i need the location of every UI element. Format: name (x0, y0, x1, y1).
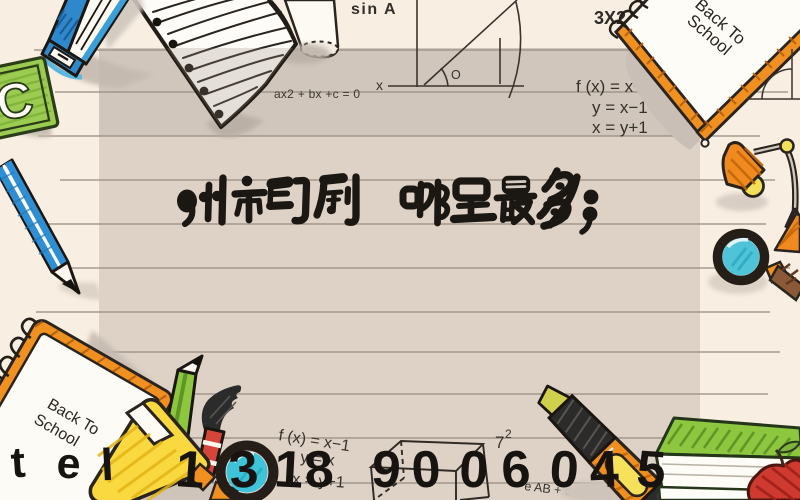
svg-text:1: 1 (174, 440, 207, 500)
svg-text:4: 4 (588, 440, 620, 499)
svg-text:sin A: sin A (351, 1, 397, 18)
svg-text:ax2 + bx +c = 0: ax2 + bx +c = 0 (274, 87, 360, 101)
svg-text:O: O (451, 68, 461, 82)
svg-text:0: 0 (458, 440, 490, 499)
svg-text:6: 6 (499, 440, 532, 500)
svg-text:x = y+1: x = y+1 (592, 118, 648, 137)
svg-text:1: 1 (273, 440, 305, 499)
svg-text:9: 9 (370, 440, 403, 500)
svg-text:0: 0 (548, 440, 581, 500)
svg-text:l: l (100, 439, 115, 491)
svg-text:0: 0 (410, 440, 442, 499)
svg-text:3: 3 (227, 440, 261, 500)
svg-text:y = x−1: y = x−1 (592, 98, 648, 117)
svg-text:2: 2 (505, 427, 512, 441)
svg-text:x: x (376, 77, 383, 93)
svg-text:5: 5 (635, 440, 668, 500)
svg-text:e: e (56, 439, 82, 488)
svg-text:8: 8 (302, 440, 335, 500)
